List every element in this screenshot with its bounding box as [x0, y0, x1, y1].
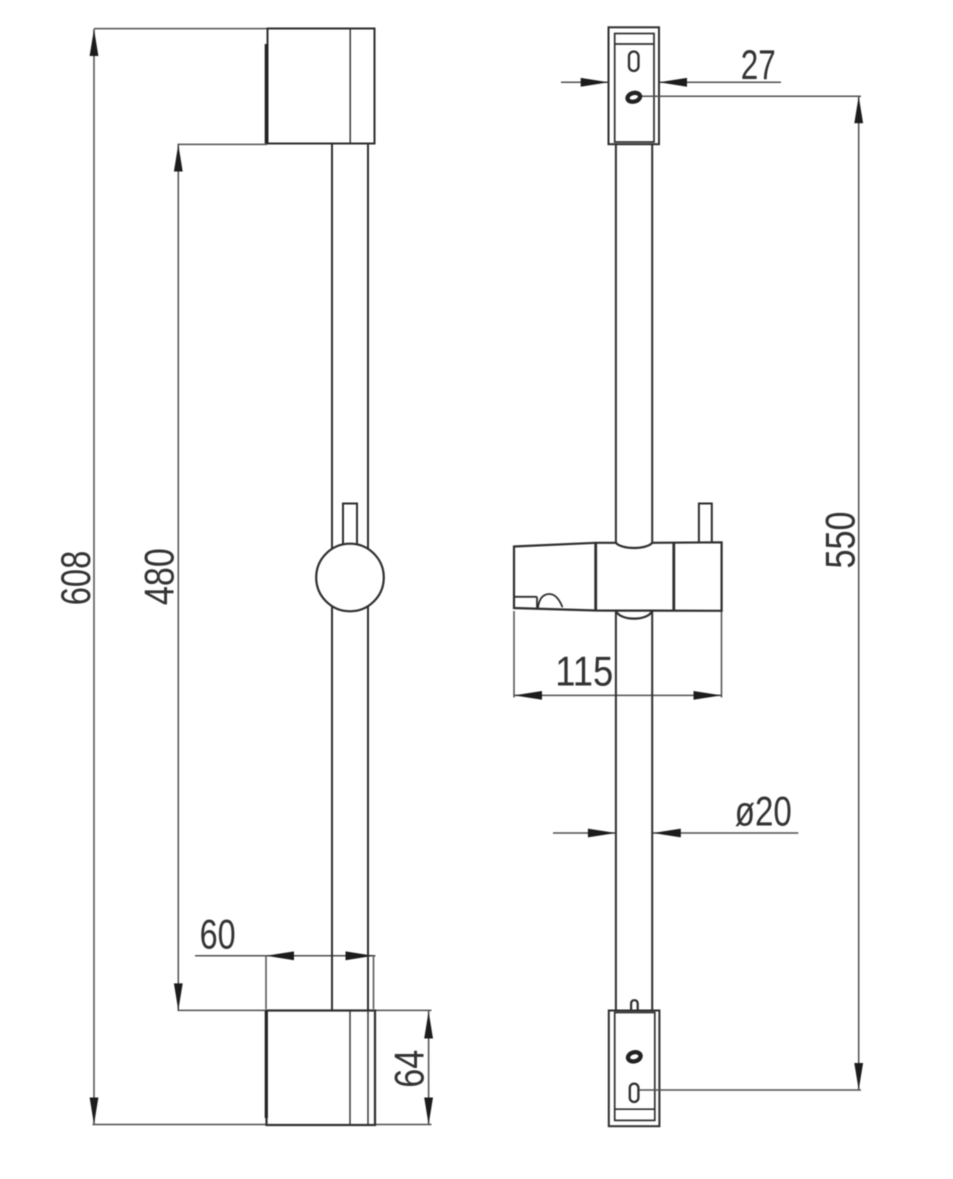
svg-text:64: 64 — [386, 1050, 433, 1088]
svg-text:550: 550 — [817, 512, 864, 569]
svg-text:ø20: ø20 — [735, 788, 792, 835]
svg-text:60: 60 — [200, 911, 236, 958]
svg-text:115: 115 — [555, 647, 613, 694]
svg-text:27: 27 — [741, 41, 776, 88]
svg-text:480: 480 — [136, 548, 183, 605]
svg-text:608: 608 — [52, 551, 99, 606]
